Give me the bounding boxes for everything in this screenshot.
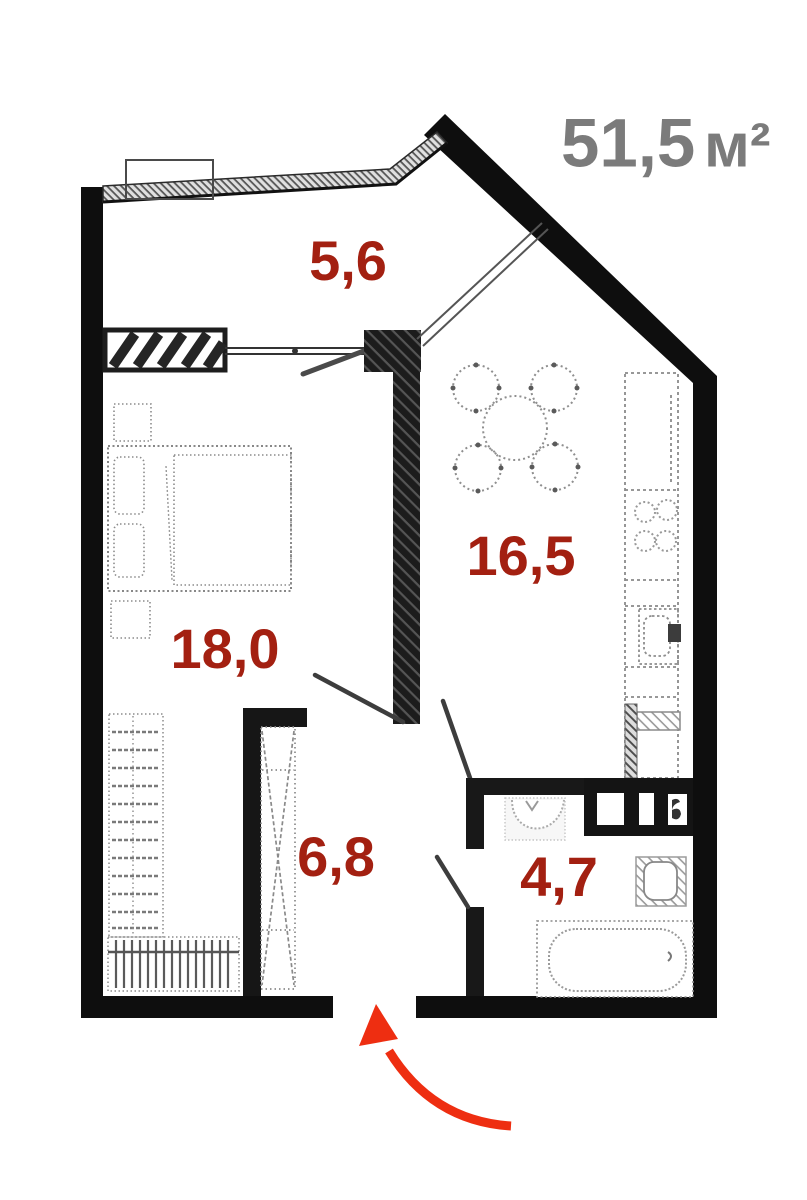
svg-text:16,5: 16,5 bbox=[467, 524, 576, 587]
svg-text:18,0: 18,0 bbox=[171, 617, 280, 680]
svg-text:5,6: 5,6 bbox=[309, 229, 387, 292]
svg-text:51,5: 51,5 bbox=[561, 105, 695, 182]
svg-text:4,7: 4,7 bbox=[520, 845, 598, 908]
svg-text:6,8: 6,8 bbox=[297, 825, 375, 888]
svg-text:м²: м² bbox=[704, 112, 771, 181]
